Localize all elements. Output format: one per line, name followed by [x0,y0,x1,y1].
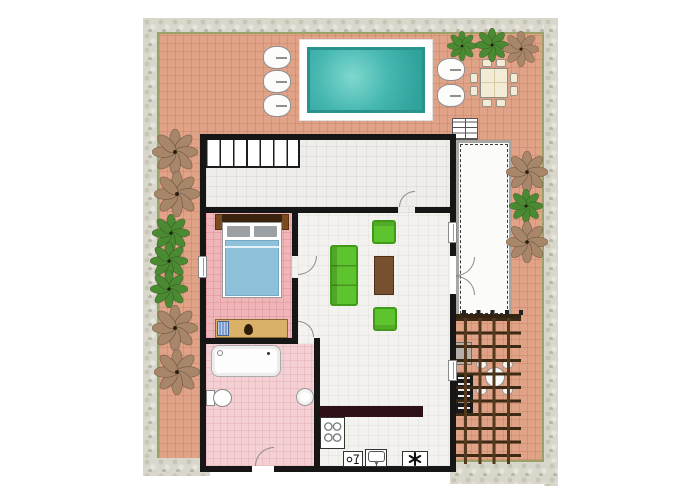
sun-lounger[interactable] [437,84,465,107]
desk-chair-seat [244,324,253,335]
bathtub-faucet [217,350,223,356]
toilet[interactable] [213,389,232,407]
stove-burners-icon [321,417,344,449]
stone-border-bottom-right [450,462,558,484]
coffee-table[interactable] [374,256,394,295]
patio-chair[interactable] [496,99,506,107]
blue-basket[interactable] [217,321,229,336]
pillow [226,225,251,238]
door-gap-hallway-living [398,207,415,213]
stove[interactable] [320,417,345,449]
palm-tree-icon[interactable] [503,31,539,67]
freezer-star-icon [408,452,422,466]
sun-lounger[interactable] [263,46,291,69]
palm-tree-icon[interactable] [154,171,200,217]
dishwasher[interactable] [343,451,363,467]
kitchen-sink[interactable] [365,449,387,467]
bathtub-drain [267,352,270,355]
patio-chair[interactable] [510,73,518,83]
palm-tree-icon[interactable] [152,305,198,351]
green-tree-icon[interactable] [150,270,188,308]
door-gap-bathroom-outside [252,466,274,472]
freezer[interactable] [402,451,428,467]
sun-lounger[interactable] [263,70,291,93]
dishwasher-icon [346,453,360,466]
patio-chair[interactable] [482,99,492,107]
patio-dining-table[interactable] [480,68,508,98]
bed-fold-line [225,246,279,248]
pergola[interactable] [450,314,521,464]
green-sofa[interactable] [330,245,358,306]
patio-chair[interactable] [470,73,478,83]
bed-blanket [225,240,279,296]
floor-plan-canvas [0,0,700,500]
green-tree-icon[interactable] [447,31,477,61]
palm-tree-icon[interactable] [154,349,200,395]
green-armchair[interactable] [373,307,397,331]
pillow [253,225,278,238]
kitchen-counter[interactable] [320,406,423,417]
patio-chair[interactable] [470,86,478,96]
round-washbasin[interactable] [296,388,314,406]
window-bedroom-left[interactable] [198,256,207,278]
sun-lounger[interactable] [437,58,465,81]
bed-headboard [222,214,282,222]
door-gap-living-bathroom [298,338,314,344]
window-kitchen-right[interactable] [448,360,457,381]
sun-lounger[interactable] [263,94,291,117]
patio-chair[interactable] [510,86,518,96]
window-living-right[interactable] [448,222,457,243]
palm-tree-icon[interactable] [506,221,548,263]
palm-tree-icon[interactable] [152,129,198,175]
sink-icon [367,450,386,466]
green-tree-icon[interactable] [509,189,543,223]
swimming-pool[interactable] [307,47,425,113]
interior-staircase[interactable] [206,140,300,168]
green-armchair[interactable] [372,220,396,244]
palm-tree-icon[interactable] [506,151,548,193]
